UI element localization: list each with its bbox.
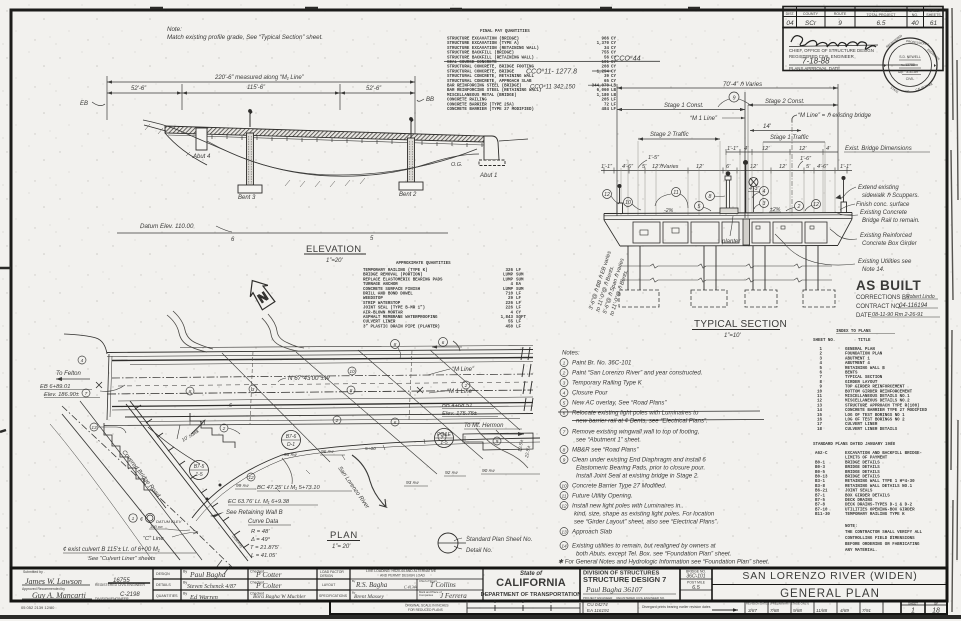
svg-text:“M Line” = ℏ existing bridge: “M Line” = ℏ existing bridge xyxy=(798,112,872,119)
svg-text:6,060: 6,060 xyxy=(597,89,610,93)
svg-text:STRIP WATERSTOP: STRIP WATERSTOP xyxy=(363,302,401,306)
svg-text:DETAILS: DETAILS xyxy=(156,583,171,587)
svg-text:LF: LF xyxy=(516,302,521,306)
svg-text:13: 13 xyxy=(91,425,97,431)
svg-text:DRILL AND BOND DOWEL: DRILL AND BOND DOWEL xyxy=(363,293,413,297)
svg-text:BAR REINFORCING STEEL (BRIDGE): BAR REINFORCING STEEL (BRIDGE) xyxy=(447,84,522,89)
svg-text:BRIDGE DETAILS: BRIDGE DETAILS xyxy=(845,461,880,465)
svg-text:LF: LF xyxy=(611,108,616,112)
svg-text:TEMPORARY RAILING (TYPE K): TEMPORARY RAILING (TYPE K) xyxy=(363,268,428,273)
svg-text:REVISION DATES (PRELIMINARY ST: REVISION DATES (PRELIMINARY STAGE ONLY) xyxy=(746,602,809,606)
svg-text:OF: OF xyxy=(934,602,938,606)
svg-text:4: 4 xyxy=(563,391,566,397)
svg-text:34: 34 xyxy=(604,47,609,51)
svg-text:CALIFORNIA: CALIFORNIA xyxy=(496,577,566,589)
svg-text:Chief of Struct.: Chief of Struct. xyxy=(419,579,438,583)
svg-text:GENERAL PLAN: GENERAL PLAN xyxy=(845,348,875,352)
svg-text:¢ exist culvert B 115'± Lt. of: ¢ exist culvert B 115'± Lt. of 6+00 M₁ xyxy=(63,547,160,553)
svg-text:Existing Reinforced: Existing Reinforced xyxy=(860,233,912,239)
svg-text:Note 14.: Note 14. xyxy=(862,267,885,273)
svg-text:SHEET: SHEET xyxy=(908,602,918,606)
svg-text:CONCRETE BARRIER TYPE 27 MODIF: CONCRETE BARRIER TYPE 27 MODIFIED xyxy=(845,409,928,413)
svg-text:LF: LF xyxy=(611,99,616,103)
svg-text:AIR-BLOWN MORTAR: AIR-BLOWN MORTAR xyxy=(363,311,403,315)
svg-text:9/88: 9/88 xyxy=(793,608,802,613)
svg-text:PLAN: PLAN xyxy=(330,530,358,541)
svg-text:STRUCTURE BACKFILL (BRIDGE): STRUCTURE BACKFILL (BRIDGE) xyxy=(447,51,514,56)
svg-text:Paint “San Lorenzo River” and: Paint “San Lorenzo River” and year const… xyxy=(572,370,702,377)
svg-text:Exp.: Exp. xyxy=(898,70,904,74)
svg-text:SUM: SUM xyxy=(516,288,524,292)
svg-text:10: 10 xyxy=(817,390,822,394)
svg-text:15: 15 xyxy=(817,414,822,418)
svg-text:7: 7 xyxy=(85,391,88,397)
svg-text:29: 29 xyxy=(508,297,513,301)
svg-text:ABUTMENT 1: ABUTMENT 1 xyxy=(845,357,870,361)
svg-text:BC 47.25' Lt M₁ 5+73.10: BC 47.25' Lt M₁ 5+73.10 xyxy=(257,485,320,491)
svg-text:CCO#11 342,150: CCO#11 342,150 xyxy=(530,83,576,91)
svg-text:115'-6”: 115'-6” xyxy=(247,85,266,91)
svg-text:2: 2 xyxy=(562,371,566,377)
svg-text:Install new light poles with: Install new light poles with Luminaires … xyxy=(572,503,684,510)
svg-text:LIVE LOADING: HS20-44 AND ALT: LIVE LOADING: HS20-44 AND ALTERNATIVE xyxy=(366,569,437,573)
svg-text:Extend existing: Extend existing xyxy=(858,185,899,191)
svg-text:9: 9 xyxy=(496,439,499,445)
svg-text:BEFORE ORDERING OR FABRICATING: BEFORE ORDERING OR FABRICATING xyxy=(845,543,920,547)
svg-text:Note:: Note: xyxy=(167,26,182,33)
svg-text:3” PLASTIC DRAIN PIPE (PLANTER: 3” PLASTIC DRAIN PIPE (PLANTER) xyxy=(363,324,440,329)
svg-text:450: 450 xyxy=(506,325,514,329)
svg-text:BOX GIRDER DETAILS: BOX GIRDER DETAILS xyxy=(845,494,890,498)
svg-text:MISCELLANEOUS METAL (BRIDGE): MISCELLANEOUS METAL (BRIDGE) xyxy=(447,93,517,98)
svg-text:COUNTY: COUNTY xyxy=(803,12,819,16)
svg-text:“M 1 Line”: “M 1 Line” xyxy=(447,389,475,395)
svg-text:P Cotter: P Cotter xyxy=(255,570,282,579)
svg-text:See “Culvert Liner” sheets: See “Culvert Liner” sheets xyxy=(88,556,155,562)
svg-text:PLANS APPROVAL DATE: PLANS APPROVAL DATE xyxy=(789,66,840,71)
svg-text:7-18-88: 7-18-88 xyxy=(802,57,830,66)
svg-text:Bent 3: Bent 3 xyxy=(238,195,256,201)
svg-text:To Felton: To Felton xyxy=(56,371,81,377)
svg-text:61: 61 xyxy=(930,20,938,27)
svg-text:Concrete Box Girder: Concrete Box Girder xyxy=(862,241,918,247)
svg-text:TURNAGE ANCHOR: TURNAGE ANCHOR xyxy=(363,283,398,287)
svg-text:SHEET NO.: SHEET NO. xyxy=(813,339,835,343)
svg-text:BB: BB xyxy=(426,97,434,103)
svg-text:STANDARD PLANS DATED JANUARY 1: STANDARD PLANS DATED JANUARY 1988 xyxy=(813,443,896,447)
svg-text:EA 116191: EA 116191 xyxy=(587,608,610,613)
svg-text:9: 9 xyxy=(563,458,566,464)
svg-text:12': 12' xyxy=(799,146,807,152)
svg-text:TOP GIRDER REINFORCEMENT: TOP GIRDER REINFORCEMENT xyxy=(845,386,905,390)
svg-text:100 RW: 100 RW xyxy=(150,524,164,529)
svg-text:8: 8 xyxy=(394,342,397,348)
svg-text:Stage 2 Traffic: Stage 2 Traffic xyxy=(650,132,689,138)
svg-text:LUMP: LUMP xyxy=(503,274,513,278)
svg-text:Standard Plan Sheet No.: Standard Plan Sheet No. xyxy=(466,537,532,543)
svg-text:Finish conc. surface: Finish conc. surface xyxy=(856,202,910,208)
svg-text:Approach Slab: Approach Slab xyxy=(571,529,613,536)
svg-text:Stage 1 Traffic: Stage 1 Traffic xyxy=(770,135,809,141)
svg-text:To Mt. Hermon: To Mt. Hermon xyxy=(464,423,504,429)
svg-text:04: 04 xyxy=(786,20,794,27)
svg-text:Remove existing wingwall wall: Remove existing wingwall wall to top of … xyxy=(572,429,699,436)
svg-text:By: By xyxy=(183,570,187,574)
svg-text:Exist. Bridge Dimensions: Exist. Bridge Dimensions xyxy=(845,146,912,152)
svg-text:6: 6 xyxy=(394,420,397,426)
svg-text:TYPICAL SECTION: TYPICAL SECTION xyxy=(694,319,787,330)
svg-text:8: 8 xyxy=(563,448,566,454)
svg-text:5+00: 5+00 xyxy=(365,446,376,452)
svg-text:1”=20': 1”=20' xyxy=(326,258,344,264)
svg-text:12: 12 xyxy=(248,475,254,481)
svg-text:CCO#44: CCO#44 xyxy=(614,54,641,63)
svg-text:226: 226 xyxy=(506,302,514,306)
svg-text:4: 4 xyxy=(81,358,84,364)
svg-text:B7-8: B7-8 xyxy=(815,504,825,508)
svg-text:Install Joint Seal at existin: Install Joint Seal at existing bridge in… xyxy=(576,473,699,480)
svg-text:BENTS: BENTS xyxy=(845,372,858,376)
svg-text:SCr: SCr xyxy=(805,20,817,27)
svg-text:18: 18 xyxy=(817,428,822,432)
svg-text:Existing utilities to remain,: Existing utilities to remain, but realig… xyxy=(572,543,716,550)
svg-text:3/87: 3/87 xyxy=(748,608,757,613)
svg-text:13: 13 xyxy=(561,530,567,536)
svg-text:LAYOUT: LAYOUT xyxy=(322,583,335,587)
svg-text:CY: CY xyxy=(611,38,616,42)
svg-text:New AC overlay, See “Road Plan: New AC overlay, See “Road Plans” xyxy=(572,400,667,407)
svg-text:Curve Data: Curve Data xyxy=(248,519,279,525)
svg-text:205: 205 xyxy=(602,99,610,103)
svg-text:WEEDSTOP: WEEDSTOP xyxy=(363,297,383,301)
svg-text:NOTE:: NOTE: xyxy=(845,525,857,529)
svg-text:966: 966 xyxy=(602,38,610,42)
svg-text:Stage 2 Const.: Stage 2 Const. xyxy=(765,99,805,105)
svg-text:484: 484 xyxy=(602,108,610,112)
svg-text:EA: EA xyxy=(516,283,521,287)
svg-text:11/88: 11/88 xyxy=(816,608,828,613)
svg-text:CULVERT LINER DETAILS: CULVERT LINER DETAILS xyxy=(845,428,898,432)
svg-text:14: 14 xyxy=(561,544,567,550)
svg-text:STRUCTURE APPROACH TYPE R(100): STRUCTURE APPROACH TYPE R(100) xyxy=(845,403,920,408)
svg-text:3-31-89: 3-31-89 xyxy=(906,70,918,74)
svg-text:Bridge Rail to remain.: Bridge Rail to remain. xyxy=(862,218,920,224)
svg-text:1: 1 xyxy=(132,516,135,522)
svg-text:10: 10 xyxy=(625,200,631,206)
svg-text:Paint Br. No. 36C-101: Paint Br. No. 36C-101 xyxy=(572,360,631,367)
svg-text:39: 39 xyxy=(604,75,609,79)
svg-text:CHIEF, OFFICE OF STRUCTURE DES: CHIEF, OFFICE OF STRUCTURE DESIGN xyxy=(789,48,874,53)
svg-text:12': 12' xyxy=(762,146,770,152)
svg-text:7/91: 7/91 xyxy=(862,608,871,613)
svg-text:36C-101: 36C-101 xyxy=(686,574,705,580)
svg-text:B0-5: B0-5 xyxy=(815,471,825,475)
svg-text:SUM: SUM xyxy=(516,278,524,282)
svg-text:12: 12 xyxy=(604,192,610,198)
svg-text:Detail No.: Detail No. xyxy=(466,548,492,554)
svg-text:BOTTOM GIRDER REINFORCEMENT: BOTTOM GIRDER REINFORCEMENT xyxy=(845,390,913,394)
svg-text:2: 2 xyxy=(522,600,524,604)
svg-text:Datum Elev. 110.00: Datum Elev. 110.00 xyxy=(140,223,194,230)
svg-text:1: 1 xyxy=(911,608,915,615)
svg-text:Abut 1: Abut 1 xyxy=(479,173,497,179)
svg-text:STRUCTURAL CONCRETE, APPROACH: STRUCTURAL CONCRETE, APPROACH SLAB xyxy=(447,80,532,84)
svg-text:52'-6”: 52'-6” xyxy=(366,86,382,92)
svg-text:S.D. NEWELL: S.D. NEWELL xyxy=(899,55,921,59)
svg-text:LB: LB xyxy=(611,89,616,93)
svg-text:DECK DRAINS-TYPES D-1 & D-2: DECK DRAINS-TYPES D-1 & D-2 xyxy=(845,504,913,508)
svg-text:MB&R see “Road Plans”: MB&R see “Road Plans” xyxy=(572,447,639,454)
svg-text:2: 2 xyxy=(335,418,339,424)
svg-text:SHEETS: SHEETS xyxy=(926,13,941,17)
svg-text:C 41344: C 41344 xyxy=(404,585,418,590)
svg-text:FOR REDUCED PLANS: FOR REDUCED PLANS xyxy=(408,608,443,612)
svg-text:B3-8: B3-8 xyxy=(815,485,825,489)
svg-text:LIMITS OF PAYMENT: LIMITS OF PAYMENT xyxy=(845,457,888,461)
svg-text:1-5: 1-5 xyxy=(195,472,202,478)
svg-text:8: 8 xyxy=(189,389,192,395)
svg-text:BAR REINFORCING STEEL (RETAINI: BAR REINFORCING STEEL (RETAINING WALL) xyxy=(447,88,541,93)
svg-text:No.: No. xyxy=(901,63,906,67)
svg-text:6.5: 6.5 xyxy=(692,585,701,591)
svg-text:LUMP: LUMP xyxy=(503,278,513,282)
svg-text:2: 2 xyxy=(464,383,468,389)
svg-text:see “Abutment 1” sheet.: see “Abutment 1” sheet. xyxy=(576,437,641,444)
svg-text:710: 710 xyxy=(506,293,514,297)
svg-text:55: 55 xyxy=(508,321,513,325)
svg-text:Clean under existing End Diaph: Clean under existing End Diaphragm and i… xyxy=(572,457,706,464)
svg-text:CIVIL: CIVIL xyxy=(906,77,915,81)
svg-text:SQFT: SQFT xyxy=(516,316,526,320)
svg-text:J Ferrera: J Ferrera xyxy=(440,592,467,600)
svg-text:3: 3 xyxy=(252,387,255,393)
svg-text:TEMPORARY RAILING TYPE K: TEMPORARY RAILING TYPE K xyxy=(845,513,905,517)
svg-text:3: 3 xyxy=(763,201,766,207)
svg-text:1'-1”: 1'-1” xyxy=(601,164,613,170)
svg-text:1”=10': 1”=10' xyxy=(724,333,742,339)
svg-text:7/88: 7/88 xyxy=(770,608,779,613)
svg-text:EB: EB xyxy=(80,101,88,107)
svg-text:0: 0 xyxy=(466,600,468,604)
svg-text:Existing Concrete: Existing Concrete xyxy=(860,210,908,216)
svg-text:CY: CY xyxy=(611,42,616,46)
svg-text:STRUCTURAL CONCRETE, BRIDGE FO: STRUCTURAL CONCRETE, BRIDGE FOOTING xyxy=(447,66,534,70)
svg-text:CY: CY xyxy=(611,80,616,84)
svg-text:12': 12' xyxy=(750,164,758,170)
svg-text:LF: LF xyxy=(516,293,521,297)
svg-text:ELEVATION: ELEVATION xyxy=(306,244,362,255)
svg-text:1'-5”: 1'-5” xyxy=(648,155,660,161)
svg-text:1'-6”: 1'-6” xyxy=(800,156,812,162)
svg-text:EXCAVATION AND BACKFILL BRIDGE: EXCAVATION AND BACKFILL BRIDGE- xyxy=(845,452,922,456)
svg-text:R = 48': R = 48' xyxy=(251,529,270,535)
svg-text:BRIDGE DETAILS: BRIDGE DETAILS xyxy=(845,476,880,480)
svg-text:UTILITIES OPENING-BOX GIRDER: UTILITIES OPENING-BOX GIRDER xyxy=(845,508,915,512)
svg-text:CU 04274: CU 04274 xyxy=(587,602,608,607)
svg-text:ABUTMENT 4: ABUTMENT 4 xyxy=(845,362,870,366)
svg-text:see “Girder Layout” sheet, als: see “Girder Layout” sheet, also see “Ele… xyxy=(574,519,718,526)
svg-text:Δ = 49°: Δ = 49° xyxy=(250,537,271,543)
svg-text:1: 1 xyxy=(563,361,566,367)
svg-text:CULVERT LINER: CULVERT LINER xyxy=(363,321,396,325)
svg-text:BRIDGE DETAILS: BRIDGE DETAILS xyxy=(845,471,880,475)
svg-text:B11-30: B11-30 xyxy=(815,513,830,517)
svg-text:PROJECT ENGINEER REGISTERE: PROJECT ENGINEER REGISTERED CIVIL ENGINE… xyxy=(583,596,665,600)
svg-text:1-5: 1-5 xyxy=(440,440,447,446)
svg-text:5: 5 xyxy=(563,401,566,407)
svg-text:Elastomeric Bearing Pads, prio: Elastomeric Bearing Pads, prior to closu… xyxy=(576,465,705,472)
svg-text:65: 65 xyxy=(604,80,609,84)
svg-text:sidewalk ℏ Scuppers.: sidewalk ℏ Scuppers. xyxy=(862,192,919,199)
svg-text:Submitted by .: Submitted by . xyxy=(23,570,45,574)
svg-text:11: 11 xyxy=(562,494,567,500)
svg-text:10: 10 xyxy=(349,369,355,375)
svg-text:8: 8 xyxy=(350,388,353,394)
svg-text:TYPICAL SECTION: TYPICAL SECTION xyxy=(845,376,883,380)
svg-text:Paul Bagha: Paul Bagha xyxy=(189,570,226,579)
svg-text:5: 5 xyxy=(698,204,701,210)
svg-text:CULVERT LINER: CULVERT LINER xyxy=(845,423,878,427)
svg-text:SPECIFICATIONS: SPECIFICATIONS xyxy=(319,594,348,598)
svg-text:“C” Line: “C” Line xyxy=(143,536,164,542)
svg-text:BRIDGE REMOVAL (PORTION): BRIDGE REMOVAL (PORTION) xyxy=(363,273,423,278)
svg-text:P Colter: P Colter xyxy=(255,581,282,590)
svg-text:STRUCTURAL CONCRETE, RETAINING: STRUCTURAL CONCRETE, RETAINING WALL xyxy=(447,75,534,79)
svg-text:RETAINING WALL B: RETAINING WALL B xyxy=(845,367,885,371)
svg-text:B0-13: B0-13 xyxy=(815,476,828,480)
svg-text:DATUM ELEV: DATUM ELEV xyxy=(156,519,182,524)
svg-text:CY: CY xyxy=(611,75,616,79)
svg-text:Elev. 175.75±: Elev. 175.75± xyxy=(442,411,477,417)
svg-text:7: 7 xyxy=(563,430,566,436)
svg-text:3: 3 xyxy=(563,381,566,387)
svg-text:DEPARTMENT OF TRANSPORTATION: DEPARTMENT OF TRANSPORTATION xyxy=(481,592,582,598)
svg-text:Notes:: Notes: xyxy=(562,350,580,357)
svg-text:BB 4+68.51: BB 4+68.51 xyxy=(442,403,472,409)
svg-text:JOINT SEALS: JOINT SEALS xyxy=(845,490,873,494)
svg-text:Concrete Barrier Type 27 Modif: Concrete Barrier Type 27 Modified. xyxy=(572,483,666,490)
svg-text:CY: CY xyxy=(611,66,616,70)
svg-text:4'-3”: 4'-3” xyxy=(749,186,759,192)
svg-text:11: 11 xyxy=(817,395,822,399)
svg-text:12: 12 xyxy=(813,202,819,208)
svg-text:DATE: DATE xyxy=(856,313,872,319)
svg-text:CCO#11- 1277.8: CCO#11- 1277.8 xyxy=(526,68,577,76)
svg-text:QUANTITIES: QUANTITIES xyxy=(156,594,178,598)
svg-text:Temporary Railing Type K: Temporary Railing Type K xyxy=(572,380,643,387)
svg-text:MISCELLANEOUS DETAILS NO.2: MISCELLANEOUS DETAILS NO.2 xyxy=(845,400,910,404)
svg-text:208: 208 xyxy=(602,66,610,70)
svg-text:RETAINING WALL DETAILS NO.1: RETAINING WALL DETAILS NO.1 xyxy=(845,485,913,489)
svg-text:40: 40 xyxy=(911,20,919,27)
svg-text:FINAL PAY QUANTITIES: FINAL PAY QUANTITIES xyxy=(480,30,530,34)
svg-text:kind, size, shape as existing: kind, size, shape as existing light pole… xyxy=(574,511,715,518)
svg-text:6: 6 xyxy=(442,340,445,346)
svg-text:R.S. Bagha: R.S. Bagha xyxy=(355,581,388,589)
svg-text:Closure Pour: Closure Pour xyxy=(572,390,609,397)
svg-text:1: 1 xyxy=(494,600,496,604)
svg-text:Bent 2: Bent 2 xyxy=(399,192,417,198)
svg-text:CY: CY xyxy=(611,47,616,51)
svg-text:EB 6+89.01: EB 6+89.01 xyxy=(40,384,70,390)
svg-text:LF: LF xyxy=(516,325,521,329)
svg-text:STRUCTURE EXCAVATION (BRIDGE): STRUCTURE EXCAVATION (BRIDGE) xyxy=(447,37,519,42)
svg-text:L = 41.05': L = 41.05' xyxy=(251,553,277,559)
svg-text:1”= 20': 1”= 20' xyxy=(332,544,351,550)
svg-text:¢: ¢ xyxy=(140,517,143,523)
svg-text:14': 14' xyxy=(763,124,772,130)
svg-text:2: 2 xyxy=(222,426,226,432)
svg-text:✱ For General Notes and Hydro: ✱ For General Notes and Hydrologic Infor… xyxy=(558,559,769,566)
svg-text:1'-1”: 1'-1” xyxy=(727,146,739,152)
svg-text:SAN LORENZO RIVER (WIDEN): SAN LORENZO RIVER (WIDEN) xyxy=(742,570,917,582)
svg-text:Brent Massey: Brent Massey xyxy=(354,594,384,600)
svg-text:LOG OF TEST BORINGS NO 1: LOG OF TEST BORINGS NO 1 xyxy=(845,414,905,418)
svg-text:DESIGN: DESIGN xyxy=(320,574,334,578)
svg-text:1,843: 1,843 xyxy=(501,316,514,320)
svg-text:B0-3: B0-3 xyxy=(815,466,825,470)
svg-text:AND PERMIT DESIGN LOAD: AND PERMIT DESIGN LOAD xyxy=(380,574,426,578)
svg-text:220'-6” measured along “M₁ Lin: 220'-6” measured along “M₁ Line” xyxy=(214,75,305,81)
svg-text:12': 12' xyxy=(696,164,704,170)
svg-text:CONTROLLING FIELD DIMENSIONS: CONTROLLING FIELD DIMENSIONS xyxy=(845,537,915,541)
svg-text:LF: LF xyxy=(516,321,521,325)
svg-text:14: 14 xyxy=(817,409,822,413)
svg-text:18: 18 xyxy=(932,608,940,615)
svg-text:B0-1: B0-1 xyxy=(815,461,825,465)
svg-text:56: 56 xyxy=(604,56,609,60)
svg-text:Relocate existing light poles: Relocate existing light poles with Lumin… xyxy=(572,410,699,417)
svg-text:CONCRETE SURFACE FINISH: CONCRETE SURFACE FINISH xyxy=(363,288,421,292)
svg-text:2: 2 xyxy=(797,204,801,210)
svg-text:REPLACE ELASTOMERIC BEARING PA: REPLACE ELASTOMERIC BEARING PADS xyxy=(363,278,443,282)
svg-text:755: 755 xyxy=(602,52,610,56)
svg-text:Bora Bagha W Muchler: Bora Bagha W Muchler xyxy=(253,594,307,600)
svg-text:B7-5: B7-5 xyxy=(194,464,205,470)
svg-text:12: 12 xyxy=(561,504,567,510)
svg-text:BRIDGE DETAILS: BRIDGE DETAILS xyxy=(845,466,880,470)
svg-text:ORIGINAL SCALE IN INCHES: ORIGINAL SCALE IN INCHES xyxy=(405,604,448,608)
svg-text:By: By xyxy=(183,592,187,596)
svg-text:A62-C: A62-C xyxy=(815,452,828,456)
svg-text:RETAINING WALL TYPE 1 H=4-30: RETAINING WALL TYPE 1 H=4-30 xyxy=(845,480,915,484)
svg-text:“M Line”: “M Line” xyxy=(452,367,475,373)
svg-text:1,180: 1,180 xyxy=(597,94,610,98)
svg-text:EC 63.76' Lt. M₁ 6+9.38: EC 63.76' Lt. M₁ 6+9.38 xyxy=(228,499,290,505)
svg-text:17: 17 xyxy=(817,423,822,427)
svg-text:16: 16 xyxy=(817,419,822,423)
svg-text:T = 21.875': T = 21.875' xyxy=(250,545,280,551)
svg-text:226: 226 xyxy=(506,307,514,311)
svg-text:05 052 2139 12/80: 05 052 2139 12/80 xyxy=(21,605,55,610)
svg-text:LF: LF xyxy=(516,307,521,311)
svg-text:new barrier rail at ¢ Bents, s: new barrier rail at ¢ Bents, see “Electr… xyxy=(576,418,708,425)
svg-text:13: 13 xyxy=(817,404,822,408)
svg-text:B7-5: B7-5 xyxy=(815,499,825,503)
svg-text:CONTRACT NO.: CONTRACT NO. xyxy=(856,304,902,310)
svg-text:10: 10 xyxy=(561,484,567,490)
svg-text:D-1: D-1 xyxy=(287,442,295,448)
svg-text:FOUNDATION PLAN: FOUNDATION PLAN xyxy=(845,353,883,357)
svg-text:Stage 1 Const.: Stage 1 Const. xyxy=(664,103,704,109)
svg-text:TOTAL PROJECT: TOTAL PROJECT xyxy=(867,13,897,17)
svg-text:CONCRETE RAILING: CONCRETE RAILING xyxy=(447,99,487,103)
svg-text:LF: LF xyxy=(611,103,616,107)
svg-text:1,370: 1,370 xyxy=(597,42,610,46)
svg-text:ANY MATERIAL.: ANY MATERIAL. xyxy=(845,549,877,553)
svg-text:11: 11 xyxy=(673,190,678,196)
svg-text:Disregard prints bearing earli: Disregard prints bearing earlier revisio… xyxy=(642,605,711,609)
